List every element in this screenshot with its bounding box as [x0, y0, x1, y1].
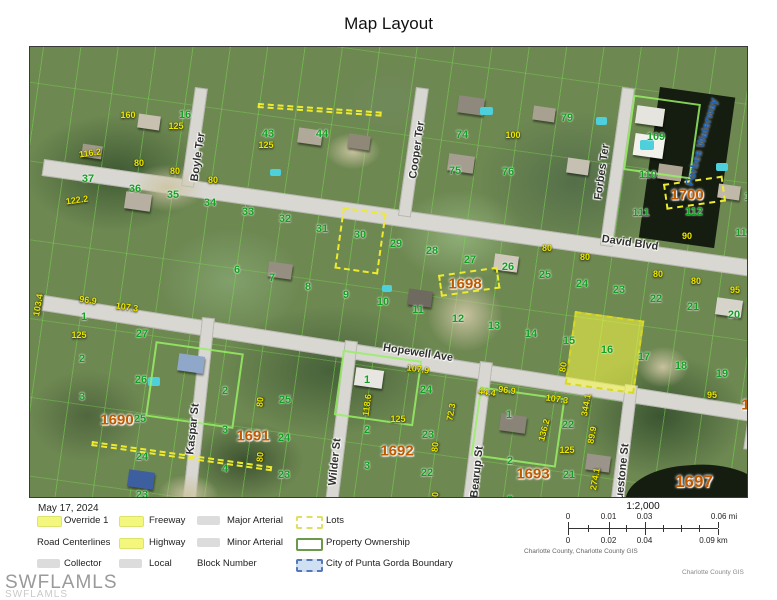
dimension-label: 125 — [168, 121, 183, 131]
parcel-number: 24 — [420, 384, 432, 396]
parcel-number: 29 — [390, 238, 402, 250]
scalebar-minor-tick — [663, 525, 664, 528]
parcel-number: 112 — [685, 206, 703, 218]
legend-label: Lots — [326, 515, 344, 526]
legend-label: Freeway — [149, 515, 185, 526]
parcel-number: 22 — [650, 293, 662, 305]
parcel-number: 24 — [136, 451, 148, 463]
scalebar-line — [568, 528, 718, 529]
legend-label: Highway — [149, 537, 185, 548]
legend-label: Property Ownership — [326, 537, 410, 548]
scalebar-minor-tick — [588, 525, 589, 528]
parcel-number: 76 — [502, 166, 514, 178]
parcel-number: 27 — [136, 328, 148, 340]
legend-label: City of Punta Gorda Boundary — [326, 558, 453, 569]
parcel-number: 44 — [316, 128, 328, 140]
legend-label: Override 1 — [64, 515, 108, 526]
parcel-number: 30 — [354, 229, 366, 241]
parcel-number: 2 — [79, 353, 85, 365]
parcel-number: 43 — [262, 128, 274, 140]
block-number: 1690 — [100, 412, 133, 429]
legend-swatch-yellow — [119, 538, 144, 549]
legend-swatch-own — [296, 538, 323, 551]
parcel-number: 16 — [179, 109, 191, 121]
parcel-number: 32 — [279, 213, 291, 225]
parcel-number: 110 — [639, 169, 657, 181]
parcel-number: 36 — [129, 183, 141, 195]
legend-swatch-lots — [296, 516, 323, 529]
attribution-line-2: Charlotte County GIS — [682, 569, 744, 576]
parcel-number: 3 — [364, 460, 370, 472]
dimension-label: 80 — [430, 442, 441, 453]
dimension-label: 160 — [120, 110, 135, 120]
dimension-label: 90 — [682, 231, 692, 241]
dimension-label: 80 — [580, 252, 590, 262]
parcel-number: 79 — [561, 112, 573, 124]
dimension-label: 125 — [258, 140, 273, 150]
parcel-number: 33 — [242, 206, 254, 218]
block-number: 1691 — [236, 428, 269, 445]
parcel-number: 27 — [464, 254, 476, 266]
parcel-number: 24 — [576, 278, 588, 290]
parcel-number: 25 — [539, 269, 551, 281]
parcel-number: 25 — [134, 413, 146, 425]
dimension-label: 125 — [559, 445, 574, 455]
dimension-label: 80 — [255, 452, 266, 463]
parcel-number: 13 — [488, 320, 500, 332]
parcel-number: 113 — [735, 227, 747, 239]
parcel-number: 24 — [278, 432, 290, 444]
parcel-number: 35 — [167, 189, 179, 201]
parcel-number: 12 — [452, 313, 464, 325]
scale-km-label: 0.02 — [601, 536, 617, 545]
parcel-number: 1 — [81, 311, 87, 323]
parcel-number: 23 — [422, 429, 434, 441]
scale-mi-label: 0.03 — [637, 512, 653, 521]
parcel-number: 1 — [364, 374, 370, 386]
dimension-label: 80 — [170, 166, 180, 176]
legend-swatch-bound — [296, 559, 323, 572]
legend-swatch-gray — [197, 516, 220, 525]
parcel-number: 25 — [279, 394, 291, 406]
page-title: Map Layout — [0, 14, 777, 34]
legend-label: Collector — [64, 558, 102, 569]
watermark-secondary: SWFLAMLS — [5, 589, 68, 600]
pool-shape — [270, 169, 281, 176]
parcel-number: 74 — [456, 129, 468, 141]
parcel-number: 34 — [204, 197, 216, 209]
parcel-number: 9 — [343, 289, 349, 301]
legend-label: Local — [149, 558, 172, 569]
legend-swatch-gray — [37, 559, 60, 568]
scalebar-minor-tick — [588, 529, 589, 532]
parcel-number: 22 — [421, 467, 433, 479]
map-layout-page: Map Layout Boyle TerCooper TerForbes Ter… — [0, 0, 777, 600]
dimension-label: 80 — [542, 243, 552, 253]
scale-ratio: 1:2,000 — [626, 501, 659, 512]
scale-km-label: 0.09 km — [699, 536, 727, 545]
legend-label: Road Centerlines — [37, 537, 110, 548]
house-shape — [566, 158, 590, 176]
parcel-number: 3 — [222, 424, 228, 436]
scale-km-label: 0.04 — [637, 536, 653, 545]
dimension-label: 95 — [707, 390, 717, 400]
parcel-number: 16 — [601, 344, 613, 356]
parcel-number: 75 — [449, 165, 461, 177]
ownership-outline — [334, 350, 422, 426]
parcel-number: 7 — [269, 272, 275, 284]
block-number: 1699 — [741, 397, 747, 414]
dimension-label: 125 — [71, 330, 86, 340]
parcel-number: 14 — [525, 328, 537, 340]
parcel-number: 21 — [687, 301, 699, 313]
scalebar-minor-tick — [681, 525, 682, 528]
block-number: 1698 — [448, 276, 481, 293]
legend-label: Block Number — [197, 558, 257, 569]
parcel-number: 4 — [222, 463, 228, 475]
dimension-label: 80 — [691, 276, 701, 286]
dimension-label: 100 — [505, 130, 520, 140]
legend-swatch-yellow — [37, 516, 62, 527]
parcel-number: 3 — [79, 391, 85, 403]
scalebar-tick — [609, 522, 610, 528]
parcel-number: 23 — [613, 284, 625, 296]
pool-shape — [596, 117, 607, 125]
scale-mi-label: 0.01 — [601, 512, 617, 521]
scalebar-tick — [718, 529, 719, 535]
scale-mi-label: 0 — [566, 512, 570, 521]
map-date: May 17, 2024 — [38, 503, 99, 514]
parcel-number: 31 — [316, 223, 328, 235]
parcel-number: 21 — [563, 469, 575, 481]
parcel-number: 114 — [744, 191, 747, 203]
clearing-patch — [158, 475, 218, 497]
parcel-number: 22 — [562, 419, 574, 431]
scalebar-minor-tick — [699, 525, 700, 528]
pool-shape — [716, 163, 728, 171]
legend-swatch-yellow — [119, 516, 144, 527]
parcel-number: 28 — [426, 245, 438, 257]
block-number: 1692 — [380, 443, 413, 460]
scalebar-tick — [609, 529, 610, 535]
scalebar-minor-tick — [681, 529, 682, 532]
parcel-number: 11 — [412, 304, 424, 316]
parcel-number: 23 — [278, 469, 290, 481]
parcel-number: 26 — [135, 374, 147, 386]
legend-label: Minor Arterial — [227, 537, 283, 548]
dimension-label: 80 — [653, 269, 663, 279]
scale-km-label: 0 — [566, 536, 570, 545]
dimension-label: 80 — [430, 492, 441, 497]
legend-label: Major Arterial — [227, 515, 283, 526]
scalebar-tick — [568, 522, 569, 528]
parcel-number: 26 — [502, 261, 514, 273]
pool-shape — [382, 285, 392, 292]
parcel-number: 3 — [507, 494, 513, 497]
scalebar-minor-tick — [699, 529, 700, 532]
parcel-number: 17 — [638, 351, 650, 363]
parcel-number: 1 — [506, 409, 512, 421]
scalebar-tick — [568, 529, 569, 535]
parcel-number: 8 — [305, 281, 311, 293]
parcel-number: 2 — [222, 385, 228, 397]
dimension-label: 80 — [557, 361, 569, 373]
parcel-number: 23 — [136, 489, 148, 497]
house-shape — [347, 134, 371, 151]
scalebar-minor-tick — [626, 525, 627, 528]
dimension-label: 125 — [390, 414, 405, 424]
map-canvas: Boyle TerCooper TerForbes TerDavid BlvdH… — [30, 47, 747, 497]
attribution-line: Charlotte County, Charlotte County GIS — [524, 548, 638, 555]
block-number: 1700 — [670, 187, 703, 204]
block-number: 1697 — [675, 472, 713, 492]
parcel-number: 111 — [632, 207, 649, 219]
parcel-number: 109 — [647, 131, 665, 143]
parcel-number: 37 — [82, 173, 94, 185]
house-shape — [137, 114, 161, 131]
parcel-number: 2 — [364, 424, 370, 436]
block-number: 1693 — [516, 466, 549, 483]
parcel-number: 10 — [377, 296, 389, 308]
dimension-label: 80 — [208, 175, 218, 185]
scalebar-minor-tick — [663, 529, 664, 532]
scalebar-tick — [645, 522, 646, 528]
legend-swatch-gray — [119, 559, 142, 568]
dimension-label: 80 — [255, 397, 266, 408]
parcel-number: 19 — [716, 368, 728, 380]
parcel-number: 6 — [234, 264, 240, 276]
scalebar-tick — [718, 522, 719, 528]
pool-shape — [480, 107, 493, 115]
dimension-label: 80 — [134, 158, 144, 168]
house-shape — [532, 106, 556, 123]
scalebar-tick — [645, 529, 646, 535]
scalebar-minor-tick — [626, 529, 627, 532]
legend-swatch-gray — [197, 538, 220, 547]
parcel-number: 15 — [563, 335, 575, 347]
house-shape — [127, 469, 155, 489]
parcel-number: 18 — [675, 360, 687, 372]
parcel-number: 2 — [507, 455, 513, 467]
scale-mi-label: 0.06 mi — [711, 512, 737, 521]
parcel-number: 20 — [728, 309, 740, 321]
dimension-label: 95 — [730, 285, 740, 295]
